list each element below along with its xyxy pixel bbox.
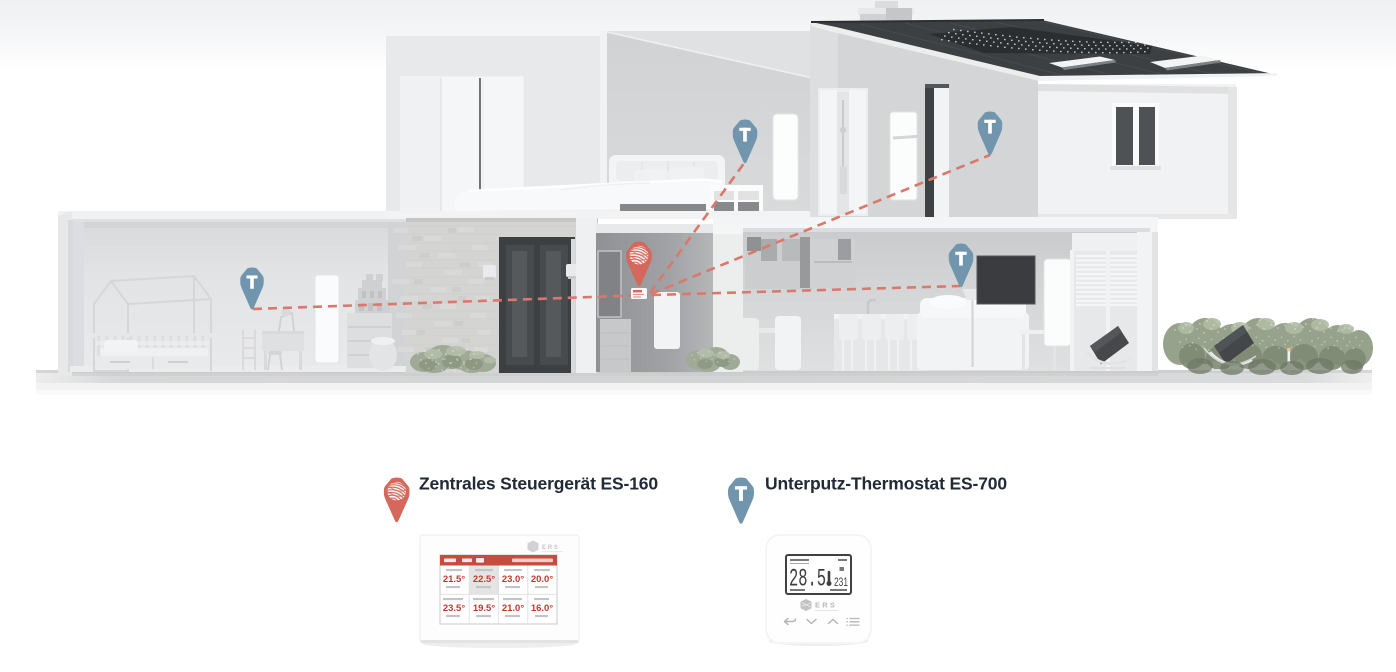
svg-text:19.5°: 19.5° (473, 603, 495, 614)
svg-text:21.5°: 21.5° (443, 574, 465, 585)
svg-text:ERS: ERS (542, 545, 560, 551)
svg-text:23.0°: 23.0° (502, 574, 524, 585)
svg-text:Zentrales Steuergerät ES-160: Zentrales Steuergerät ES-160 (419, 474, 658, 494)
svg-text:231: 231 (834, 575, 848, 589)
svg-text:ERS: ERS (815, 601, 837, 610)
svg-text:20.0°: 20.0° (531, 574, 553, 585)
svg-text:16.0°: 16.0° (531, 603, 553, 614)
svg-text:22.5°: 22.5° (473, 574, 495, 585)
svg-text:23.5°: 23.5° (443, 603, 465, 614)
svg-text:Unterputz-Thermostat ES-700: Unterputz-Thermostat ES-700 (765, 474, 1007, 494)
svg-text:21.0°: 21.0° (502, 603, 524, 614)
